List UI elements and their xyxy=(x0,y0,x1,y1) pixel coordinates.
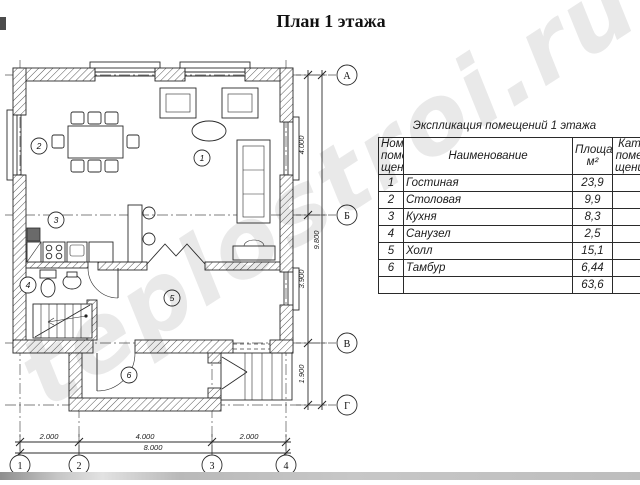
room-area: 15,1 xyxy=(573,243,613,260)
room-name: Гостиная xyxy=(404,175,573,192)
room-name: Столовая xyxy=(404,192,573,209)
dim-b-v: 3.900 xyxy=(297,269,306,289)
scan-artifact-bottom-edge xyxy=(0,472,640,480)
axis-label-2: 2 xyxy=(77,461,82,472)
col-header-name: Наименование xyxy=(404,138,573,175)
dimensions-right: 4.000 3.900 1.900 9.800 xyxy=(296,70,327,410)
axis-label-a: А xyxy=(343,71,351,82)
page-title: План 1 этажа xyxy=(0,11,640,32)
col-header-number: Номер поме- щения xyxy=(379,138,404,175)
dim-v-g: 1.900 xyxy=(297,364,306,384)
room-3-kitchen: 3 xyxy=(54,215,59,225)
room-category xyxy=(613,243,640,260)
explication-table: Номер поме- щения Наименование Площадь м… xyxy=(378,137,640,294)
table-header-row: Номер поме- щения Наименование Площадь м… xyxy=(379,138,640,175)
room-name: Санузел xyxy=(404,226,573,243)
table-row: 1 Гостиная 23,9 xyxy=(379,175,640,192)
room-category xyxy=(613,192,640,209)
dim-1-2: 2.000 xyxy=(39,432,60,441)
room-number: 4 xyxy=(379,226,404,243)
room-area: 9,9 xyxy=(573,192,613,209)
room-name: Тамбур xyxy=(404,260,573,277)
axis-label-b: Б xyxy=(344,211,350,222)
dimensions-bottom: 2.000 4.000 2.000 8.000 xyxy=(15,432,291,457)
axis-label-g: Г xyxy=(344,401,350,412)
table-row: 6 Тамбур 6,44 xyxy=(379,260,640,277)
room-name: Холл xyxy=(404,243,573,260)
scanned-floorplan-page: { "page": { "title": "План 1 этажа", "wa… xyxy=(0,0,640,480)
room-number: 3 xyxy=(379,209,404,226)
room-category xyxy=(613,175,640,192)
staircase xyxy=(33,304,92,338)
total-area: 63,6 xyxy=(573,277,613,294)
table-row: 2 Столовая 9,9 xyxy=(379,192,640,209)
dim-3-4: 2.000 xyxy=(239,432,260,441)
total-name-cell xyxy=(404,277,573,294)
room-area: 23,9 xyxy=(573,175,613,192)
table-row: 3 Кухня 8,3 xyxy=(379,209,640,226)
room-number: 6 xyxy=(379,260,404,277)
walls xyxy=(13,68,293,411)
col-header-area: Площадь м² xyxy=(573,138,613,175)
axis-label-v: В xyxy=(344,339,351,350)
room-category xyxy=(613,209,640,226)
scan-artifact-blot xyxy=(0,17,6,30)
room-number: 2 xyxy=(379,192,404,209)
room-area: 6,44 xyxy=(573,260,613,277)
room-category xyxy=(613,260,640,277)
floor-plan-canvas: 4.000 3.900 1.900 9.800 2.000 4.000 2.00… xyxy=(0,50,370,480)
axis-label-3: 3 xyxy=(210,461,215,472)
explication-title: Экспликация помещений 1 этажа xyxy=(378,120,631,132)
axis-markers-rows: А Б В Г xyxy=(337,65,357,415)
room-2-dining: 2 xyxy=(36,141,42,151)
room-number: 5 xyxy=(379,243,404,260)
axis-label-1: 1 xyxy=(18,461,23,472)
room-area: 8,3 xyxy=(573,209,613,226)
room-6-tambour: 6 xyxy=(127,370,132,380)
table-total-row: 63,6 xyxy=(379,277,640,294)
room-4-bathroom: 4 xyxy=(26,280,31,290)
floor-plan: 4.000 3.900 1.900 9.800 2.000 4.000 2.00… xyxy=(0,50,370,480)
dim-2-3: 4.000 xyxy=(136,432,156,441)
total-category-cell xyxy=(613,277,640,294)
table-row: 4 Санузел 2,5 xyxy=(379,226,640,243)
room-area: 2,5 xyxy=(573,226,613,243)
col-header-category: Кат. поме- щения xyxy=(613,138,640,175)
room-5-hall: 5 xyxy=(170,293,175,303)
room-number: 1 xyxy=(379,175,404,192)
total-number-cell xyxy=(379,277,404,294)
dim-bottom-total: 8.000 xyxy=(144,443,164,452)
porch-steps xyxy=(221,353,292,400)
dim-right-total: 9.800 xyxy=(312,230,321,250)
axis-label-4: 4 xyxy=(284,461,289,472)
room-name: Кухня xyxy=(404,209,573,226)
room-1-living: 1 xyxy=(200,153,205,163)
table-row: 5 Холл 15,1 xyxy=(379,243,640,260)
dim-a-b: 4.000 xyxy=(297,135,306,155)
room-category xyxy=(613,226,640,243)
